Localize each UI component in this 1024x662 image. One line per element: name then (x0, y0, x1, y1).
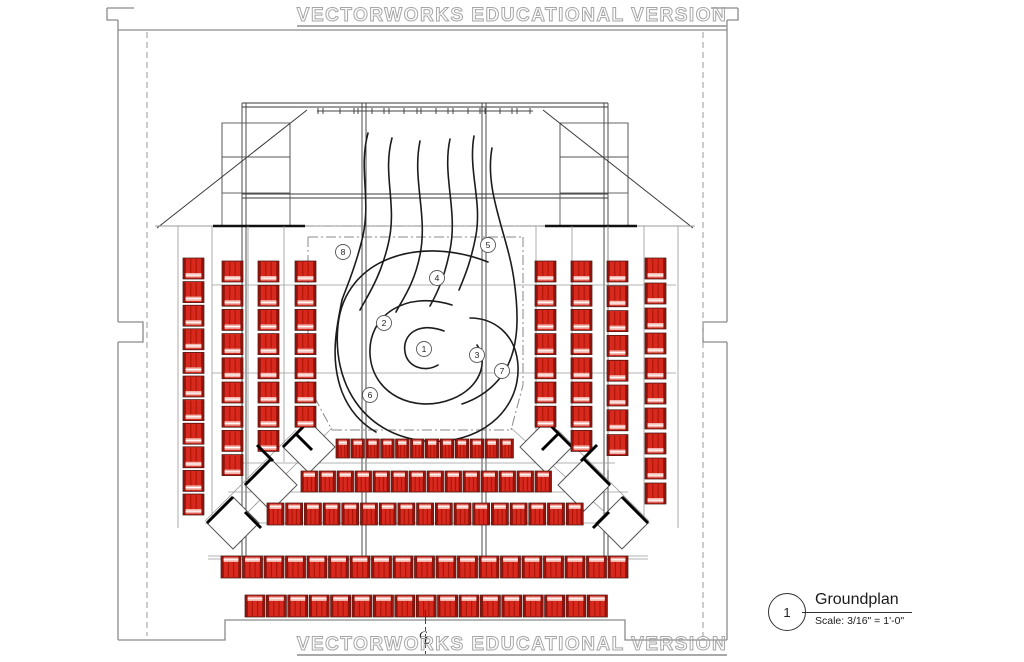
seat (485, 439, 499, 458)
seat (571, 309, 592, 330)
seat (416, 595, 436, 617)
seat (183, 329, 204, 350)
seat (645, 283, 666, 304)
svg-text:8: 8 (341, 247, 346, 257)
seat (425, 439, 439, 458)
seat (361, 503, 378, 525)
seat (571, 406, 592, 427)
seat (183, 352, 204, 373)
seat (319, 471, 336, 492)
stage-marker-5: 5 (481, 238, 496, 253)
stage-marker-1: 1 (417, 342, 432, 357)
seat (571, 382, 592, 403)
groundplan-sheet: 12345678 C L VECTORWORKS EDUCATIONAL VER… (0, 0, 1024, 662)
seat (473, 503, 490, 525)
seat (645, 308, 666, 329)
seat (323, 503, 340, 525)
seat (286, 503, 303, 525)
seat (304, 503, 321, 525)
seat (391, 471, 408, 492)
seat (571, 358, 592, 379)
seat (522, 556, 542, 578)
svg-text:2: 2 (382, 318, 387, 328)
seat (480, 595, 500, 617)
seat (438, 595, 458, 617)
seat (411, 439, 425, 458)
seat (459, 595, 479, 617)
seat (608, 556, 628, 578)
seat (266, 595, 286, 617)
seat (183, 376, 204, 397)
seat (517, 471, 534, 492)
seat (352, 595, 372, 617)
seat (535, 309, 556, 330)
centerline-l: L (423, 636, 430, 647)
seat (566, 595, 586, 617)
stage-marker-8: 8 (336, 245, 351, 260)
seat (267, 503, 284, 525)
svg-text:5: 5 (486, 240, 491, 250)
seat (258, 261, 279, 282)
seat (222, 358, 243, 379)
seat (258, 285, 279, 306)
seat (417, 503, 434, 525)
seat (183, 305, 204, 326)
seat (295, 261, 316, 282)
seat (258, 334, 279, 355)
seat (535, 406, 556, 427)
seat (499, 471, 516, 492)
svg-text:6: 6 (368, 390, 373, 400)
seat (183, 470, 204, 491)
seat (295, 358, 316, 379)
seat (510, 503, 527, 525)
seat (535, 334, 556, 355)
seat (329, 556, 349, 578)
seat (222, 309, 243, 330)
seat (258, 382, 279, 403)
seat (288, 595, 308, 617)
seat (545, 595, 565, 617)
svg-text:4: 4 (435, 273, 440, 283)
seat (337, 471, 354, 492)
seat (645, 408, 666, 429)
seat (607, 335, 628, 356)
seat (222, 382, 243, 403)
stage-marker-2: 2 (377, 316, 392, 331)
svg-text:7: 7 (500, 366, 505, 376)
seat (535, 358, 556, 379)
seat (295, 309, 316, 330)
seat (645, 483, 666, 504)
seat (470, 439, 484, 458)
seat (501, 556, 521, 578)
seat (535, 261, 556, 282)
seat (295, 406, 316, 427)
seat (222, 261, 243, 282)
seat (607, 360, 628, 381)
seat (607, 286, 628, 307)
seat (307, 556, 327, 578)
seat (566, 503, 583, 525)
seat (544, 556, 564, 578)
seat (381, 439, 395, 458)
seat (458, 556, 478, 578)
seat (379, 503, 396, 525)
seat (535, 471, 552, 492)
seat (183, 423, 204, 444)
seat (571, 430, 592, 451)
seat (342, 503, 359, 525)
seat (258, 358, 279, 379)
drawing-title-block: 1 Groundplan Scale: 3/16" = 1'-0" (765, 588, 965, 638)
seat (645, 333, 666, 354)
stage-marker-7: 7 (495, 364, 510, 379)
seat (243, 556, 263, 578)
seat (309, 595, 329, 617)
seat (398, 503, 415, 525)
seat (548, 503, 565, 525)
seat (331, 595, 351, 617)
svg-text:1: 1 (422, 344, 427, 354)
detail-number: 1 (783, 605, 790, 620)
seat (183, 447, 204, 468)
seat (502, 595, 522, 617)
seat (373, 471, 390, 492)
seat (571, 285, 592, 306)
seat (295, 334, 316, 355)
seat (500, 439, 514, 458)
stage-marker-6: 6 (363, 388, 378, 403)
seat (222, 455, 243, 476)
seat (529, 503, 546, 525)
seat (491, 503, 508, 525)
seat (435, 503, 452, 525)
seat (393, 556, 413, 578)
seat (445, 471, 462, 492)
seat (183, 494, 204, 515)
seat (565, 556, 585, 578)
stage-marker-4: 4 (430, 271, 445, 286)
sightline-diagonals (157, 110, 693, 228)
seat (395, 595, 415, 617)
seat (183, 282, 204, 303)
seat (571, 261, 592, 282)
seat (351, 439, 365, 458)
seat (301, 471, 318, 492)
seat (440, 439, 454, 458)
seat (286, 556, 306, 578)
batten-ticks (317, 108, 533, 114)
seat (607, 435, 628, 456)
seat (295, 382, 316, 403)
seat (427, 471, 444, 492)
seat (183, 258, 204, 279)
seat (258, 309, 279, 330)
seat (587, 556, 607, 578)
seat (295, 285, 316, 306)
seat (523, 595, 543, 617)
seat (481, 471, 498, 492)
seat (222, 334, 243, 355)
seat (455, 439, 469, 458)
seat (607, 311, 628, 332)
seat (221, 556, 241, 578)
seat (396, 439, 410, 458)
seat-blocks (183, 258, 666, 617)
seat (607, 385, 628, 406)
seat (571, 334, 592, 355)
seat (436, 556, 456, 578)
title-divider-line (802, 612, 912, 613)
seat (607, 261, 628, 282)
seat (355, 471, 372, 492)
svg-text:3: 3 (475, 350, 480, 360)
seat (645, 258, 666, 279)
seat (264, 556, 284, 578)
seat (454, 503, 471, 525)
detail-number-bubble: 1 (768, 593, 806, 631)
seat (366, 439, 380, 458)
seat (245, 595, 265, 617)
seat (372, 556, 392, 578)
seat (645, 358, 666, 379)
seat (415, 556, 435, 578)
seat (183, 400, 204, 421)
seat (222, 430, 243, 451)
stage-marker-3: 3 (470, 348, 485, 363)
seat (336, 439, 350, 458)
seat (222, 406, 243, 427)
seat (258, 406, 279, 427)
seat (350, 556, 370, 578)
stage-wings (222, 123, 628, 226)
seat (607, 410, 628, 431)
drawing-scale: Scale: 3/16" = 1'-0" (815, 615, 904, 627)
seat (463, 471, 480, 492)
seat (645, 383, 666, 404)
seat (535, 285, 556, 306)
seat (645, 433, 666, 454)
drawing-title: Groundplan (815, 591, 899, 609)
seat (645, 458, 666, 479)
groundplan-drawing: 12345678 C L (0, 0, 1024, 662)
seat (409, 471, 426, 492)
seat (373, 595, 393, 617)
seat (222, 285, 243, 306)
seat (479, 556, 499, 578)
seat (587, 595, 607, 617)
seat (535, 382, 556, 403)
